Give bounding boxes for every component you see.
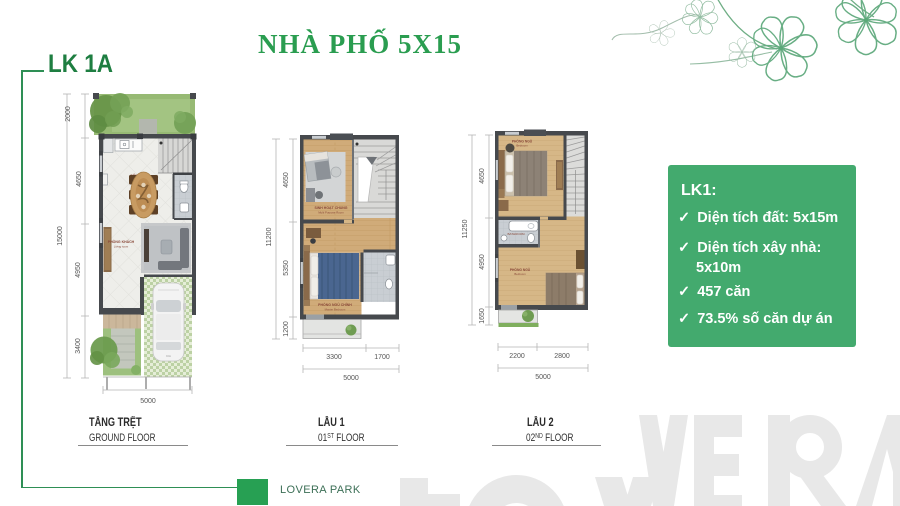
svg-text:5000: 5000 xyxy=(535,374,551,381)
svg-text:5000: 5000 xyxy=(140,398,156,405)
svg-text:3400: 3400 xyxy=(75,338,82,354)
svg-text:2000: 2000 xyxy=(65,106,72,122)
svg-text:4650: 4650 xyxy=(479,168,486,184)
svg-text:1650: 1650 xyxy=(479,308,486,324)
svg-text:BATHROOM: BATHROOM xyxy=(507,232,525,236)
svg-text:1700: 1700 xyxy=(374,354,390,361)
svg-text:15000: 15000 xyxy=(57,226,64,246)
svg-text:2800: 2800 xyxy=(554,353,570,360)
svg-text:5350: 5350 xyxy=(283,260,290,276)
svg-text:Bedroom: Bedroom xyxy=(516,144,528,148)
svg-text:Bedroom: Bedroom xyxy=(514,272,526,276)
svg-text:KIA: KIA xyxy=(166,354,171,358)
svg-text:Multi Purpose Room: Multi Purpose Room xyxy=(318,211,344,215)
svg-text:4650: 4650 xyxy=(283,172,290,188)
svg-text:Master Bedroom: Master Bedroom xyxy=(325,308,346,312)
svg-text:PHÒNG NGỦ CHÍNH: PHÒNG NGỦ CHÍNH xyxy=(318,302,352,307)
svg-text:1200: 1200 xyxy=(283,321,290,337)
svg-text:Living room: Living room xyxy=(114,245,129,249)
svg-text:PHÒNG KHÁCH: PHÒNG KHÁCH xyxy=(108,239,135,244)
svg-text:4950: 4950 xyxy=(479,254,486,270)
svg-text:4950: 4950 xyxy=(75,262,82,278)
svg-text:11250: 11250 xyxy=(462,219,469,238)
svg-text:2200: 2200 xyxy=(509,353,525,360)
svg-text:SINH HOẠT CHUNG: SINH HOẠT CHUNG xyxy=(314,206,347,210)
svg-text:3300: 3300 xyxy=(326,354,342,361)
svg-text:4650: 4650 xyxy=(76,171,83,187)
svg-text:11200: 11200 xyxy=(266,227,273,246)
svg-text:5000: 5000 xyxy=(343,375,359,382)
